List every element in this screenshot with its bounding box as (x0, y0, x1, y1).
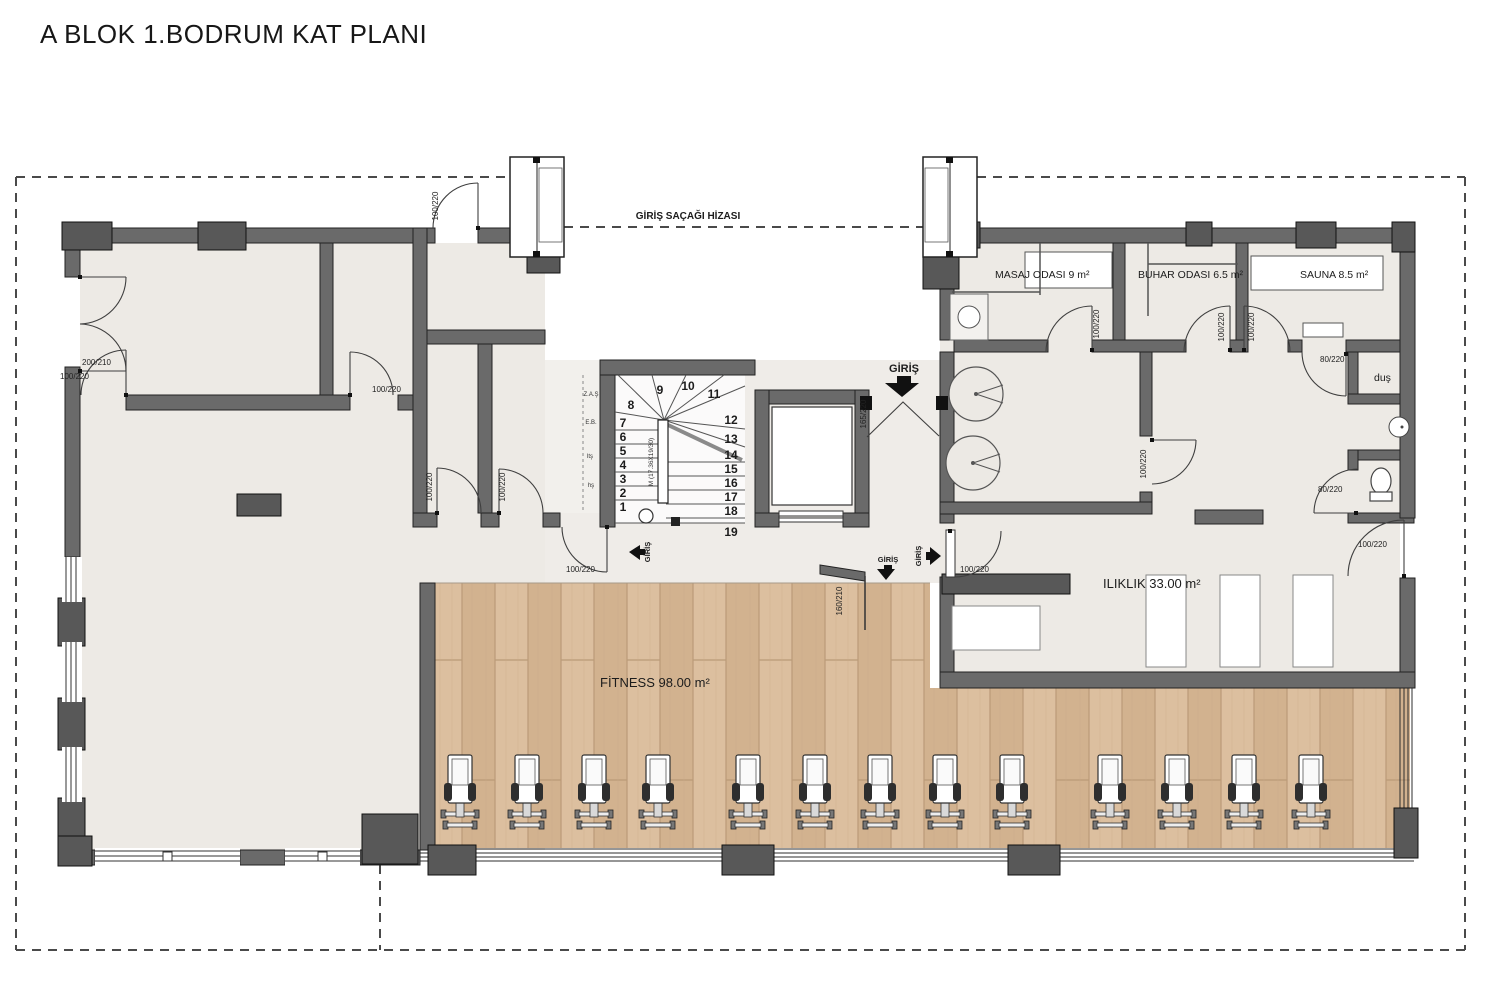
wall-sink (1389, 417, 1409, 437)
svg-text:3: 3 (620, 472, 627, 486)
sauna-stove (1303, 323, 1343, 337)
svg-text:13: 13 (724, 432, 738, 446)
svg-text:9: 9 (657, 383, 664, 397)
room-label-fitness: FİTNESS 98.00 m² (600, 675, 710, 690)
shower-stall-1 (949, 367, 1003, 421)
svg-text:14: 14 (724, 448, 738, 462)
stair-spine-wall (658, 420, 668, 503)
svg-text:Z.A.Ş: Z.A.Ş (583, 392, 598, 398)
shower-stall-2 (946, 436, 1000, 490)
svg-text:GİRİŞ: GİRİŞ (889, 362, 919, 375)
canopy-shafts (510, 157, 977, 257)
lounger-horizontal (952, 606, 1040, 650)
door-label: 100/220 (431, 191, 440, 220)
svg-text:E.B.: E.B. (585, 420, 597, 426)
svg-text:12: 12 (724, 413, 738, 427)
lounger-3 (1293, 575, 1333, 667)
canopy-line-label: GİRİŞ SAÇAĞI HİZASI (636, 209, 741, 222)
room-label-iliklik: ILIKLIK 33.00 m² (1103, 576, 1201, 591)
svg-text:GİRİŞ: GİRİŞ (914, 546, 923, 566)
window-bottom-2 (285, 848, 360, 867)
toilet (1370, 468, 1392, 501)
stair-post (671, 517, 680, 526)
door-label: 80/220 (1320, 355, 1345, 364)
shaft-right (923, 157, 977, 257)
window-left-3 (62, 747, 82, 802)
svg-text:5: 5 (620, 444, 627, 458)
page-title: A BLOK 1.BODRUM KAT PLANI (40, 19, 427, 49)
svg-text:2: 2 (620, 486, 627, 500)
svg-text:hş: hş (588, 483, 594, 489)
room-label-buhar: BUHAR ODASI 6.5 m² (1138, 269, 1244, 281)
window-left-2 (62, 642, 82, 702)
elevator-cab (772, 407, 852, 505)
svg-text:16: 16 (724, 476, 738, 490)
svg-text:4: 4 (620, 458, 627, 472)
door-label: 100/220 (425, 472, 434, 501)
svg-text:6: 6 (620, 430, 627, 444)
elevator (772, 407, 852, 522)
door-label: 80/220 (1318, 485, 1343, 494)
door-label: 100/220 (498, 472, 507, 501)
door-label: 165/220 (859, 399, 868, 428)
door-top-canopy (433, 183, 480, 230)
svg-text:11: 11 (708, 387, 721, 401)
room-label-sauna: SAUNA 8.5 m² (1300, 269, 1369, 281)
window-left-1 (62, 557, 82, 602)
lounger-2 (1220, 575, 1260, 667)
stair-spec-note: M (17.36X19/30) (648, 438, 655, 486)
svg-text:15: 15 (724, 462, 738, 476)
door-label: 100/220 (566, 565, 595, 574)
door-label: 100/220 (1247, 312, 1256, 341)
door-label: 100/220 (60, 372, 89, 381)
room-label-dus: duş (1374, 372, 1391, 384)
svg-text:1: 1 (620, 500, 627, 514)
window-bottom-1 (95, 848, 240, 867)
stair-newel (639, 509, 653, 523)
svg-text:7: 7 (620, 416, 627, 430)
door-label: 100/220 (1217, 312, 1226, 341)
door-label: 160/210 (835, 586, 844, 615)
svg-text:19: 19 (724, 525, 738, 539)
floorplan-sheet: M (17.36X19/30) 1 2 3 4 5 6 7 8 9 10 11 … (0, 0, 1500, 1001)
door-label: 100/220 (372, 385, 401, 394)
room-label-masaj: MASAJ ODASI 9 m² (995, 269, 1090, 281)
massage-sink (950, 294, 988, 340)
door-label: 100/220 (1358, 540, 1387, 549)
svg-text:18: 18 (724, 504, 738, 518)
floorplan-drawing: M (17.36X19/30) 1 2 3 4 5 6 7 8 9 10 11 … (0, 0, 1500, 1001)
svg-text:17: 17 (724, 490, 738, 504)
door-label: 100/220 (1139, 449, 1148, 478)
svg-text:ltş: ltş (587, 454, 593, 460)
door-label: 100/220 (1092, 309, 1101, 338)
door-label: 100/220 (960, 565, 989, 574)
svg-text:8: 8 (628, 398, 635, 412)
svg-text:10: 10 (681, 379, 695, 393)
door-label: 200/210 (82, 358, 111, 367)
svg-text:GİRİŞ: GİRİŞ (878, 555, 898, 564)
shaft-left (510, 157, 564, 257)
